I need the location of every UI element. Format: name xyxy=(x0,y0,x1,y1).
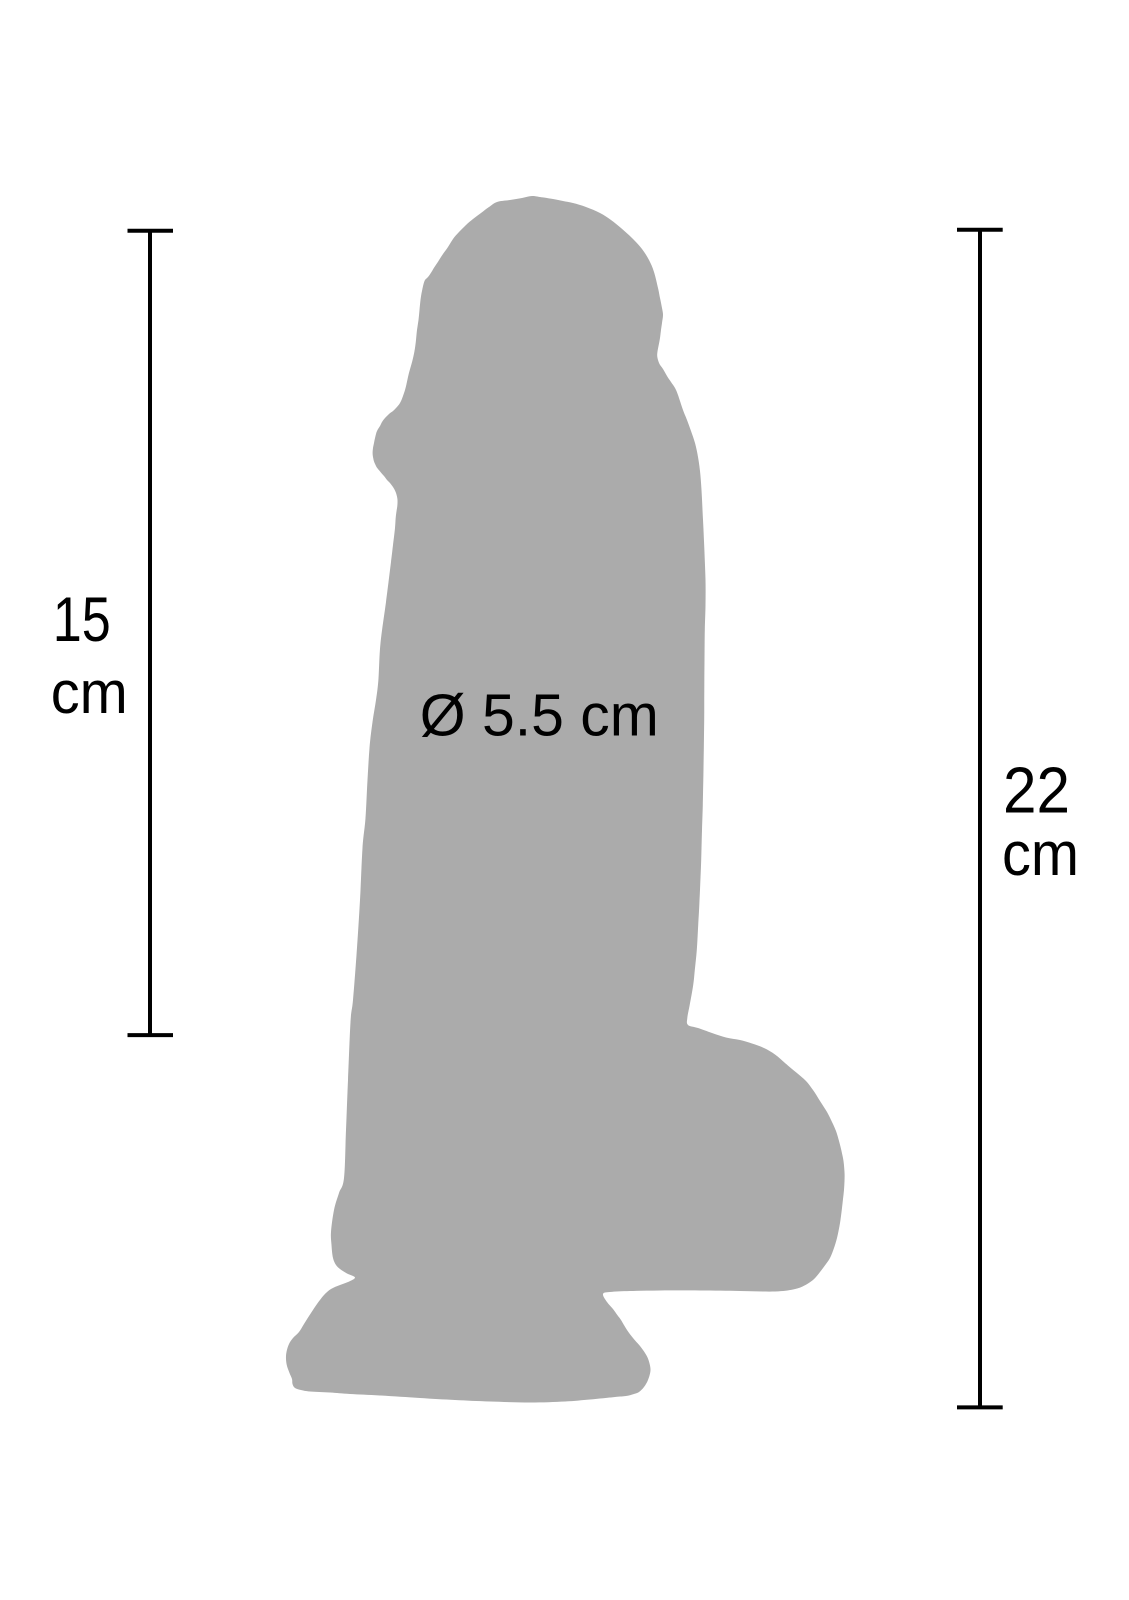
svg-text:22: 22 xyxy=(1003,754,1070,827)
svg-text:cm: cm xyxy=(1002,820,1079,889)
svg-text:Ø 5.5 cm: Ø 5.5 cm xyxy=(420,682,659,748)
svg-text:cm: cm xyxy=(51,659,128,726)
svg-text:15: 15 xyxy=(53,585,111,655)
